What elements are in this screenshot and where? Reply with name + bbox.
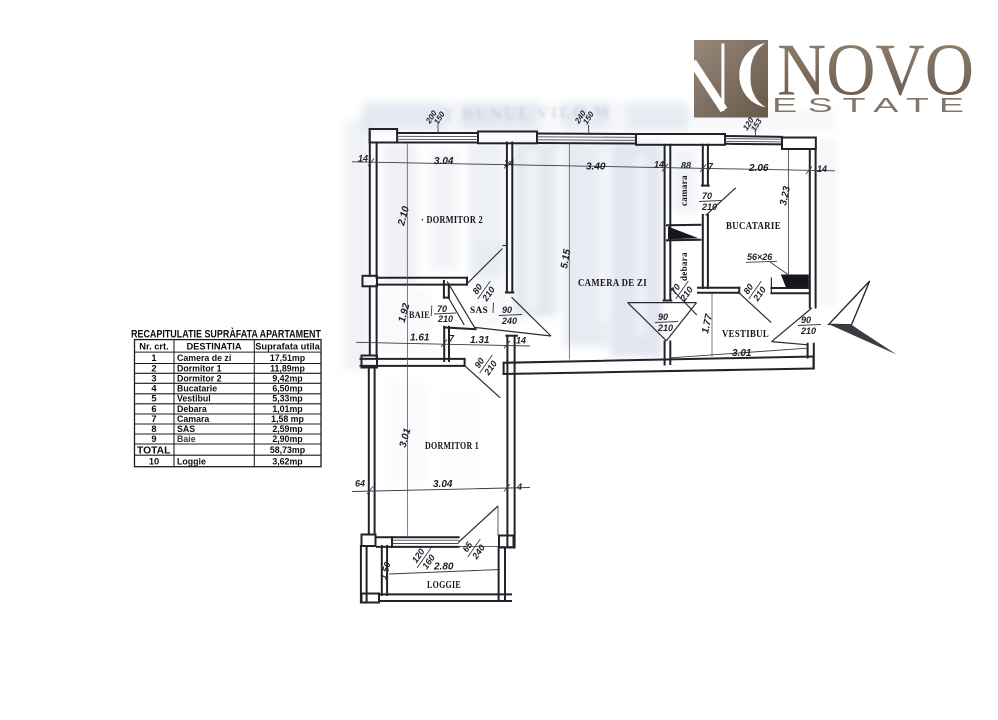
svg-text:2: 2 (151, 363, 156, 373)
svg-text:Camara: Camara (177, 414, 209, 424)
svg-text:1,01mp: 1,01mp (272, 404, 303, 414)
svg-text:17,51mp: 17,51mp (270, 353, 306, 363)
svg-text:Dormitor 2: Dormitor 2 (177, 373, 222, 383)
svg-text:TOTAL: TOTAL (137, 445, 170, 456)
svg-text:camara: camara (679, 175, 689, 206)
svg-text:14: 14 (516, 336, 526, 346)
svg-text:5: 5 (151, 394, 156, 404)
svg-text:Nr. crt.: Nr. crt. (139, 341, 168, 351)
svg-text:9,42mp: 9,42mp (272, 373, 303, 383)
svg-text:64: 64 (355, 479, 365, 489)
svg-text:90: 90 (658, 312, 668, 322)
svg-text:DORMITOR 1: DORMITOR 1 (425, 441, 479, 452)
svg-text:Vestibul: Vestibul (177, 394, 211, 404)
svg-text:3.01: 3.01 (732, 348, 752, 359)
svg-text:2,90mp: 2,90mp (272, 434, 303, 444)
svg-text:210: 210 (437, 314, 453, 324)
svg-text:7: 7 (151, 414, 156, 424)
svg-text:90: 90 (502, 305, 512, 315)
svg-text:14: 14 (358, 154, 368, 164)
svg-text:14: 14 (504, 158, 514, 168)
svg-text:CAMERA DE ZI: CAMERA DE ZI (578, 278, 647, 289)
svg-text:LOGGIE: LOGGIE (427, 580, 461, 591)
svg-text:1.31: 1.31 (470, 335, 490, 346)
svg-text:3.04: 3.04 (434, 156, 454, 167)
svg-text:1,58 mp: 1,58 mp (271, 414, 304, 424)
svg-text:Dormitor 1: Dormitor 1 (177, 363, 222, 373)
svg-text:2,59mp: 2,59mp (272, 424, 303, 434)
svg-text:Baie: Baie (177, 434, 196, 444)
svg-text:58,73mp: 58,73mp (270, 445, 306, 455)
svg-text:8: 8 (151, 424, 156, 434)
svg-text:240: 240 (501, 316, 517, 326)
svg-text:10: 10 (149, 456, 159, 466)
svg-text:70: 70 (437, 304, 447, 314)
svg-text:14: 14 (817, 164, 827, 174)
svg-text:210: 210 (657, 323, 673, 333)
svg-text:DESTINATIA: DESTINATIA (186, 342, 241, 352)
svg-text:1.61: 1.61 (410, 333, 430, 344)
svg-text:1: 1 (151, 353, 156, 363)
svg-text:14: 14 (654, 160, 664, 170)
svg-text:E S T A T E: E S T A T E (772, 95, 964, 117)
svg-text:Loggie: Loggie (177, 457, 206, 467)
svg-text:4: 4 (151, 384, 157, 394)
svg-text:210: 210 (701, 202, 717, 212)
svg-text:70: 70 (702, 191, 712, 201)
svg-text:5,33mp: 5,33mp (272, 394, 303, 404)
svg-text:Bucatarie: Bucatarie (177, 384, 217, 394)
svg-text:88: 88 (681, 161, 691, 171)
svg-text:SAS: SAS (177, 424, 195, 434)
svg-text:Debara: Debara (177, 404, 207, 414)
svg-text:90: 90 (801, 315, 811, 325)
svg-text:3,62mp: 3,62mp (272, 456, 303, 466)
svg-text:SAS: SAS (470, 305, 488, 315)
svg-text:56×26: 56×26 (747, 252, 773, 262)
svg-text:2.80: 2.80 (433, 562, 454, 573)
svg-text:210: 210 (800, 326, 816, 336)
svg-text:debara: debara (679, 252, 689, 281)
svg-text:6,50mp: 6,50mp (272, 384, 303, 394)
svg-text:BUCATARIE: BUCATARIE (726, 221, 781, 232)
svg-text:Suprafata utila: Suprafata utila (255, 342, 320, 352)
svg-text:2.06: 2.06 (748, 163, 769, 174)
svg-text:4: 4 (516, 482, 522, 492)
svg-text:· DORMITOR 2: · DORMITOR 2 (421, 215, 483, 226)
svg-text:3: 3 (151, 373, 156, 383)
svg-text:BAIE: BAIE (409, 310, 430, 320)
svg-text:3.04: 3.04 (433, 479, 453, 490)
svg-text:VESTIBUL: VESTIBUL (722, 329, 769, 340)
svg-text:6: 6 (151, 404, 156, 414)
svg-text:11,89mp: 11,89mp (270, 363, 305, 373)
svg-text:9: 9 (151, 434, 156, 444)
svg-text:RECAPITULATIE SUPRÀFATA APARTA: RECAPITULATIE SUPRÀFATA APARTAMENT (131, 328, 321, 341)
svg-text:Camera de zi: Camera de zi (177, 353, 231, 363)
svg-text:3.40: 3.40 (586, 162, 606, 173)
